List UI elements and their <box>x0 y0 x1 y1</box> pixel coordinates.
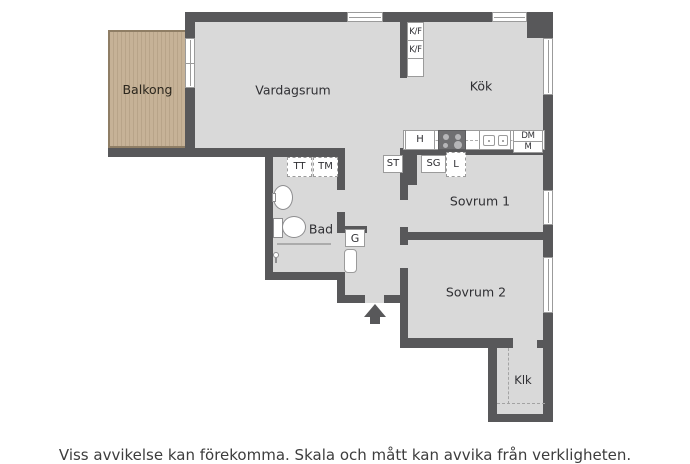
closet-g-label: G <box>351 233 360 244</box>
towel-rail <box>277 243 331 245</box>
wall-corner-northeast <box>527 12 553 38</box>
wall-hall-sovrum1-stub <box>400 185 408 200</box>
hob-box: H <box>405 130 435 150</box>
room-label-balkong: Balkong <box>122 82 172 97</box>
wall-top-right <box>383 12 492 22</box>
fridge-freezer-label: K/F <box>407 22 424 41</box>
washer-tm: TM <box>313 157 338 177</box>
wall-klk-entry-stub <box>537 340 545 348</box>
window-sovrum1-east <box>543 190 553 225</box>
wall-east-south <box>543 313 553 422</box>
disclaimer-caption: Viss avvikelse kan förekomma. Skala och … <box>0 446 690 464</box>
wall-entry-right <box>384 295 408 303</box>
washer-tm-label: TM <box>318 162 333 172</box>
washbasin-tap <box>272 193 276 202</box>
room-label-klk: Klk <box>514 373 531 387</box>
window-vardagsrum-top <box>347 12 383 22</box>
wall-east-between-bedrooms <box>543 225 553 257</box>
balcony-door-split <box>186 63 194 64</box>
wall-west-upper <box>185 12 195 40</box>
room-label-sovrum2: Sovrum 2 <box>446 285 506 300</box>
wall-sovrum2-west <box>400 268 408 348</box>
room-label-bad: Bad <box>309 222 333 237</box>
room-label-kok: Kök <box>470 79 492 94</box>
room-label-vardagsrum: Vardagsrum <box>255 83 330 98</box>
window-sovrum2-east <box>543 257 553 313</box>
klk-rail-horizontal <box>497 403 545 404</box>
wall-vardagsrum-kok-divider <box>400 22 407 78</box>
closet-g: G <box>345 229 365 247</box>
wall-bad-east-upper <box>337 157 345 190</box>
closet-l-label: L <box>453 160 459 170</box>
hob-label: H <box>416 135 424 145</box>
wall-bad-west <box>265 157 273 280</box>
wall-west-lower <box>185 88 195 157</box>
window-kok-east <box>543 38 553 95</box>
entrance-arrow-stem <box>370 316 380 324</box>
wall-sovrum-divider <box>400 232 548 240</box>
wall-bad-south <box>265 272 345 280</box>
klk-rail-vertical <box>508 348 509 404</box>
stove-icon <box>438 130 466 150</box>
fridge-freezer-column: K/F K/F <box>407 22 424 77</box>
dishwasher-micro-box: DM M <box>513 130 543 150</box>
closet-sg: SG <box>421 155 446 173</box>
balcony-deck: Balkong <box>108 30 185 148</box>
micro-label: M <box>513 141 543 153</box>
dryer-tt: TT <box>287 157 312 177</box>
floorplan: Balkong K/F K/F H <box>0 0 690 460</box>
closet-st-label: ST <box>387 159 399 169</box>
wall-bad-east-stub <box>337 212 345 233</box>
sink-icon <box>479 130 511 150</box>
washbasin-icon <box>273 185 293 210</box>
room-label-sovrum1: Sovrum 1 <box>450 194 510 209</box>
wall-klk-south <box>488 414 553 422</box>
cabinet-cell <box>407 58 424 77</box>
wall-top-left <box>185 12 347 22</box>
closet-sg-label: SG <box>426 159 440 169</box>
wall-klk-west <box>488 342 497 422</box>
wall-entry-left <box>337 295 365 303</box>
fridge-freezer-label: K/F <box>407 40 424 59</box>
closet-l: L <box>446 152 466 177</box>
dryer-tt-label: TT <box>293 162 305 172</box>
wall-south-west <box>108 148 345 157</box>
closet-g-door <box>344 249 357 273</box>
closet-st: ST <box>383 155 403 173</box>
window-kok-top <box>492 12 527 22</box>
floor-drain-mark <box>275 258 277 263</box>
toilet-bowl <box>282 216 306 238</box>
